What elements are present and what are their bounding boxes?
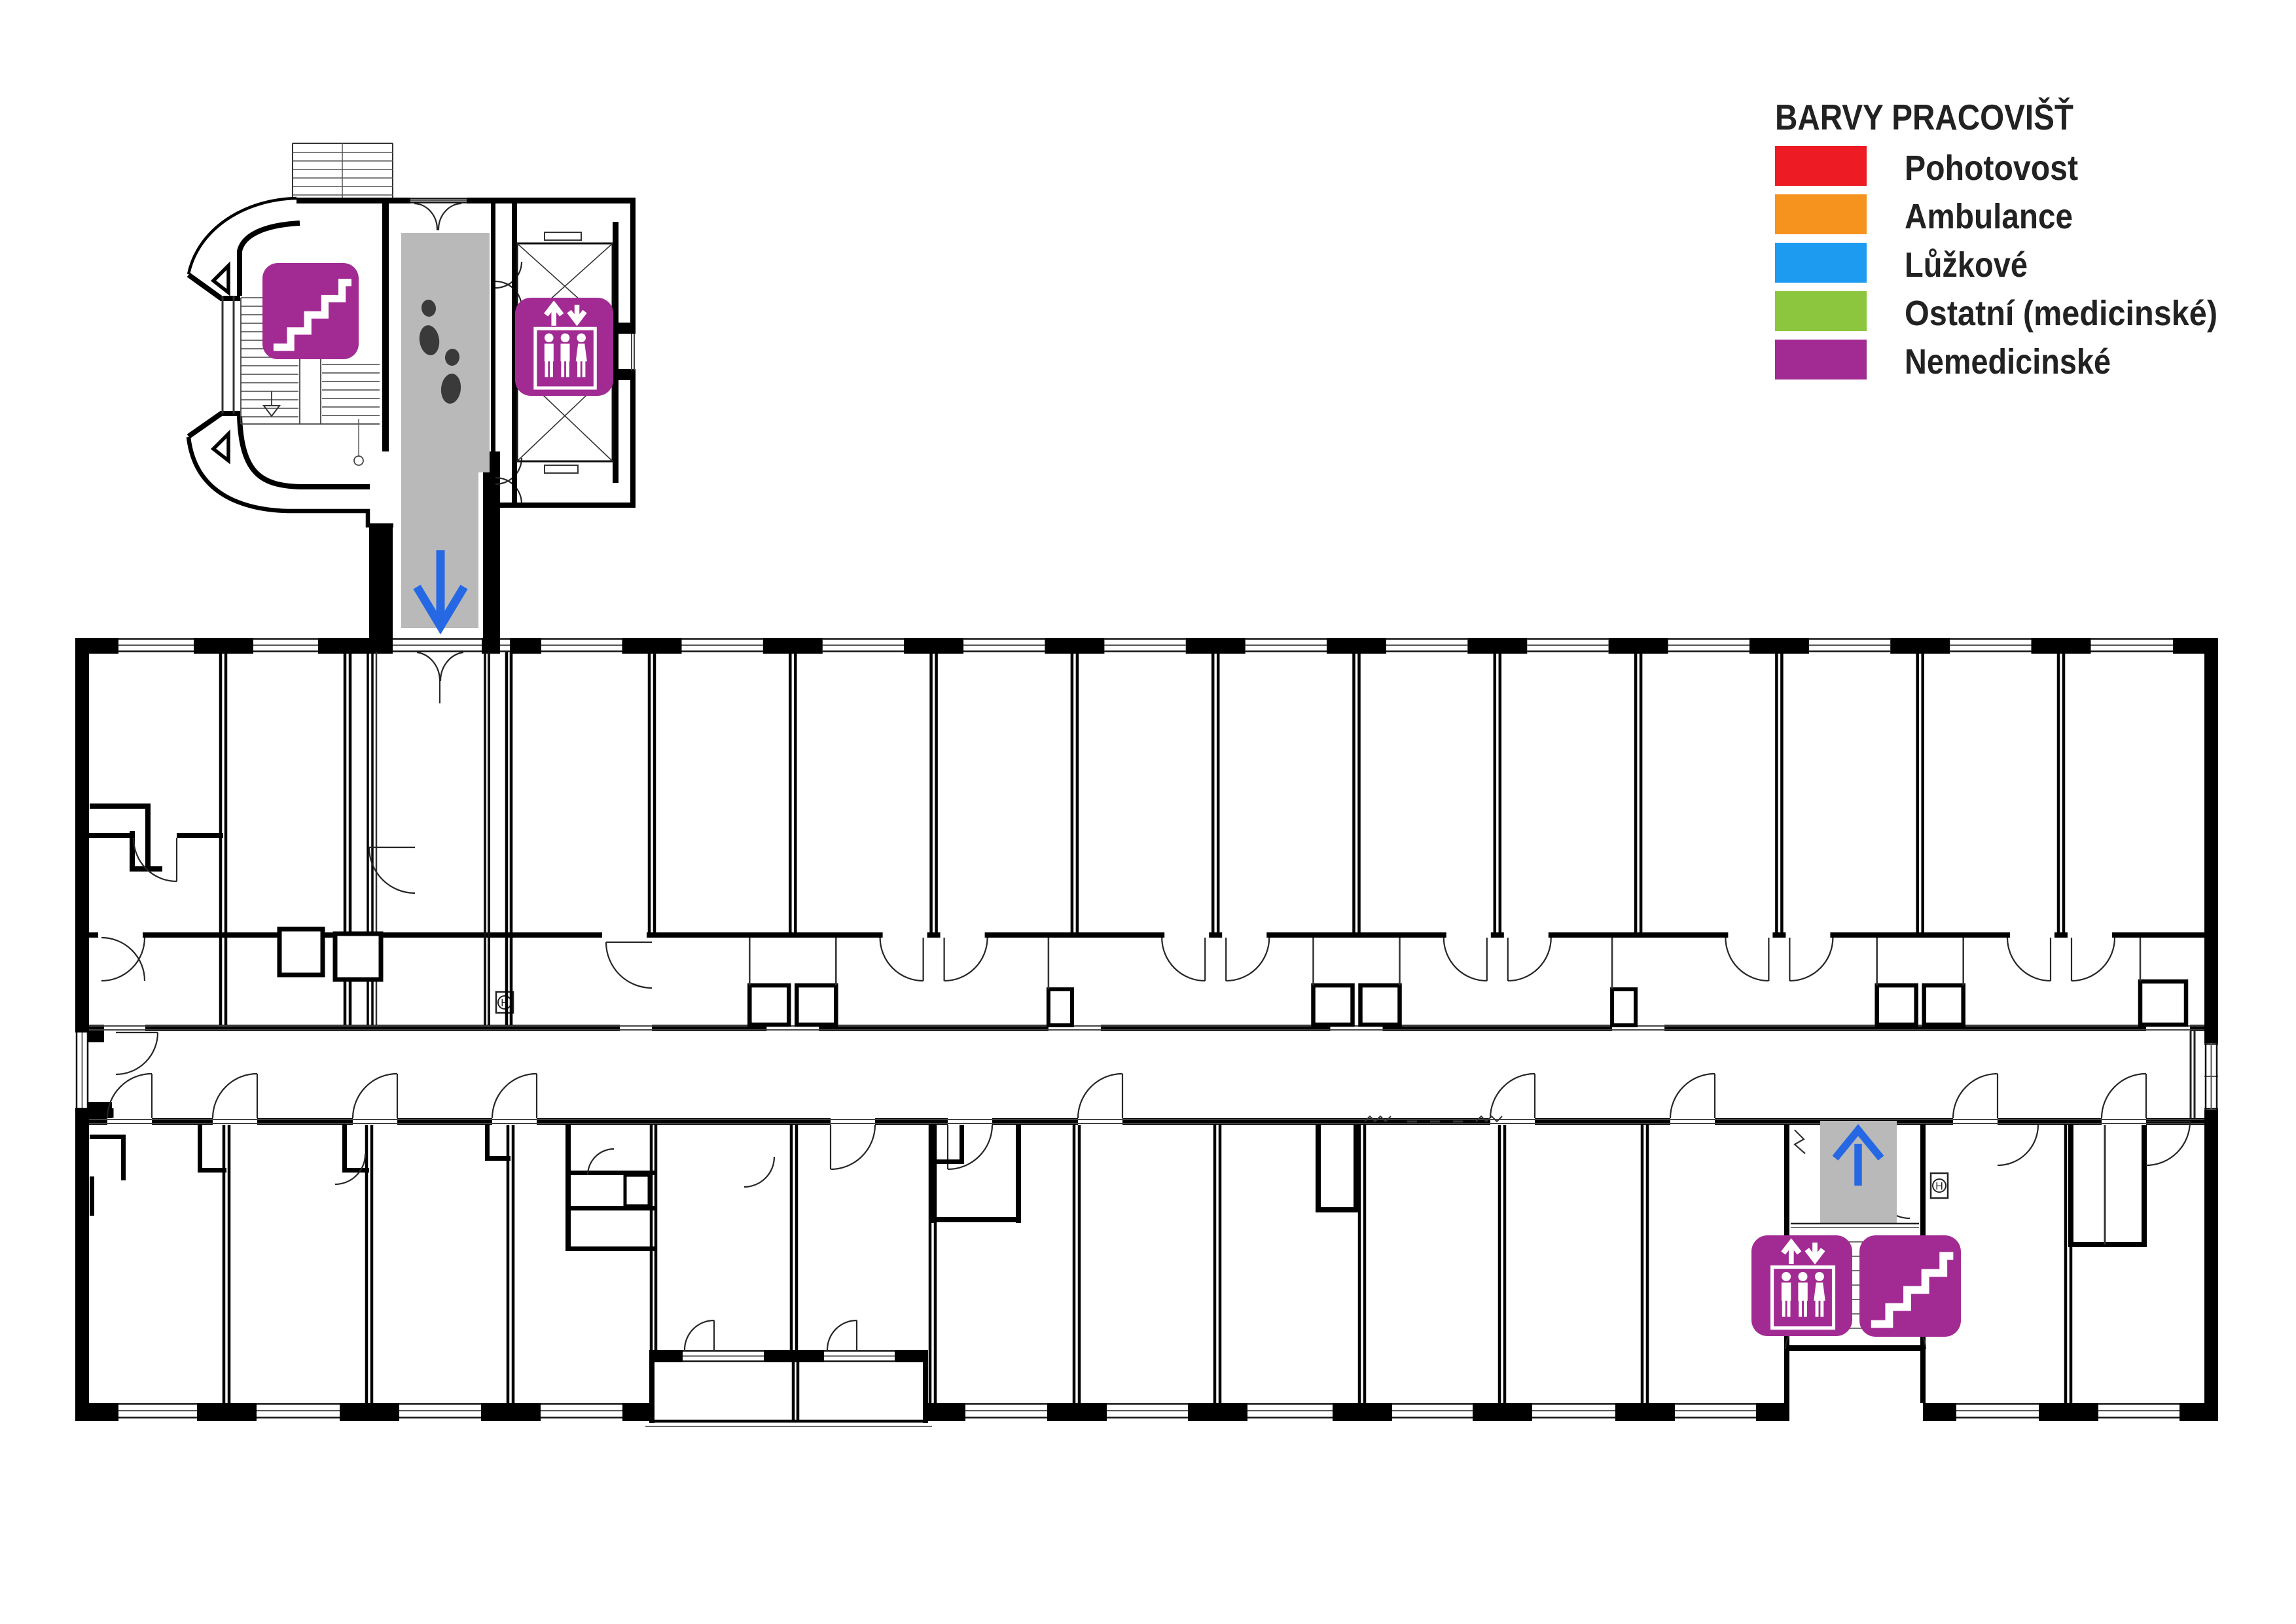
svg-text:Ostatní (medicinské): Ostatní (medicinské) [1905,294,2217,333]
svg-text:BARVY PRACOVIŠŤ: BARVY PRACOVIŠŤ [1775,97,2073,137]
svg-text:Lůžkové: Lůžkové [1905,245,2028,285]
svg-text:Ambulance: Ambulance [1905,197,2073,236]
svg-text:Pohotovost: Pohotovost [1905,149,2078,188]
svg-text:Nemedicinské: Nemedicinské [1905,342,2111,381]
svg-text:H: H [1935,1181,1943,1192]
